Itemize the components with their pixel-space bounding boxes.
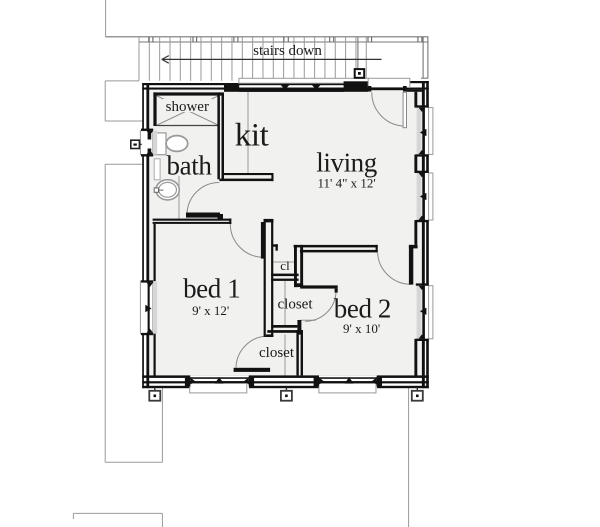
svg-text:9' x 12': 9' x 12' xyxy=(192,303,229,318)
svg-text:bed 2: bed 2 xyxy=(334,294,391,324)
svg-text:closet: closet xyxy=(278,297,314,313)
svg-text:kit: kit xyxy=(235,118,269,154)
svg-text:bed 1: bed 1 xyxy=(183,274,240,304)
svg-text:living: living xyxy=(316,147,377,177)
svg-text:shower: shower xyxy=(166,99,209,115)
svg-text:9' x 10': 9' x 10' xyxy=(343,321,380,336)
svg-text:cl: cl xyxy=(280,258,290,273)
svg-text:11' 4" x 12': 11' 4" x 12' xyxy=(317,176,375,191)
svg-text:closet: closet xyxy=(259,345,295,361)
svg-text:stairs down: stairs down xyxy=(253,43,322,59)
svg-text:bath: bath xyxy=(167,151,213,181)
